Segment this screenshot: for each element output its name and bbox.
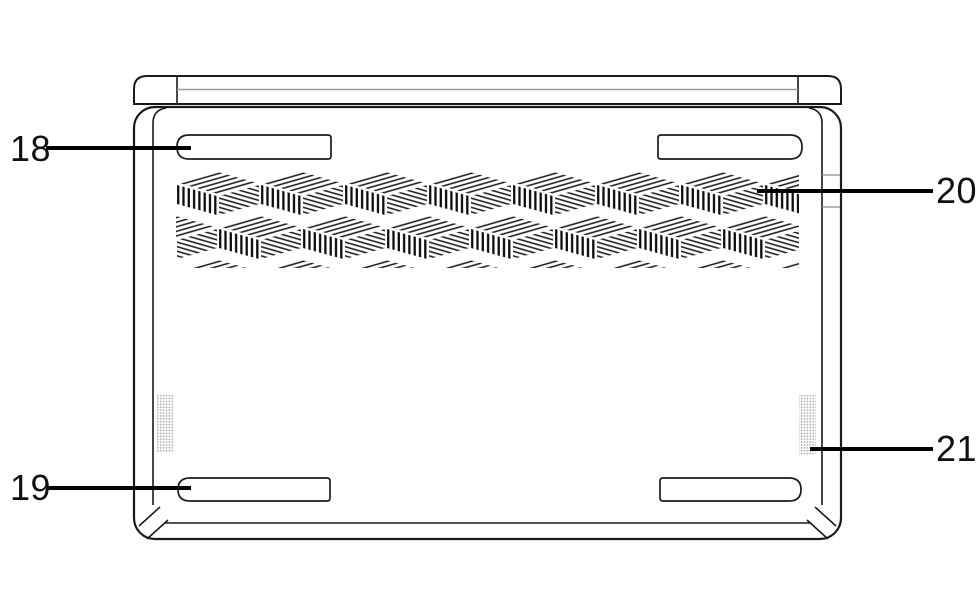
- callout-label-19: 19: [10, 470, 50, 506]
- rubber-foot-bottom-left: [178, 478, 330, 501]
- rubber-foot-bottom-right: [660, 478, 801, 501]
- rubber-foot-top-right: [658, 135, 802, 159]
- speaker-grille-right: [799, 395, 816, 455]
- speaker-grille-left: [156, 395, 173, 453]
- rubber-foot-top-left: [177, 135, 331, 159]
- callout-label-18: 18: [10, 131, 50, 167]
- callout-label-20: 20: [936, 173, 978, 209]
- lid-rear-edge-strip: [134, 76, 841, 104]
- laptop-bottom-view-drawing: [0, 0, 978, 600]
- ventilation-grille: [176, 171, 799, 268]
- laptop-bottom-view-figure: 18 19 20 21: [0, 0, 978, 600]
- callout-label-21: 21: [936, 431, 978, 467]
